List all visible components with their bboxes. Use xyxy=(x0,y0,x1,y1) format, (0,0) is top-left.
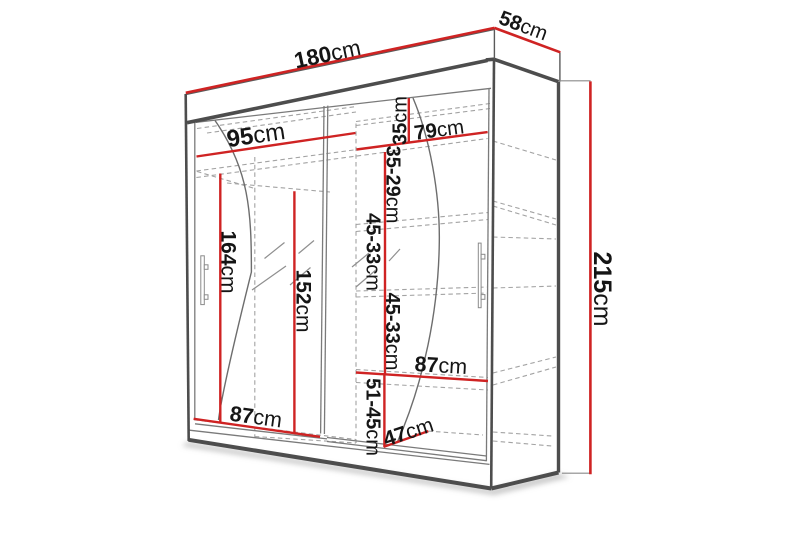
svg-text:45-33cm: 45-33cm xyxy=(362,213,384,291)
svg-text:215cm: 215cm xyxy=(588,251,616,326)
svg-text:35-29cm: 35-29cm xyxy=(382,146,404,224)
svg-text:45-33cm: 45-33cm xyxy=(381,293,403,371)
svg-text:164cm: 164cm xyxy=(217,230,240,293)
svg-text:87cm: 87cm xyxy=(414,352,468,379)
svg-text:152cm: 152cm xyxy=(292,269,315,332)
svg-text:35cm: 35cm xyxy=(390,96,412,145)
svg-text:51-45cm: 51-45cm xyxy=(362,378,384,456)
